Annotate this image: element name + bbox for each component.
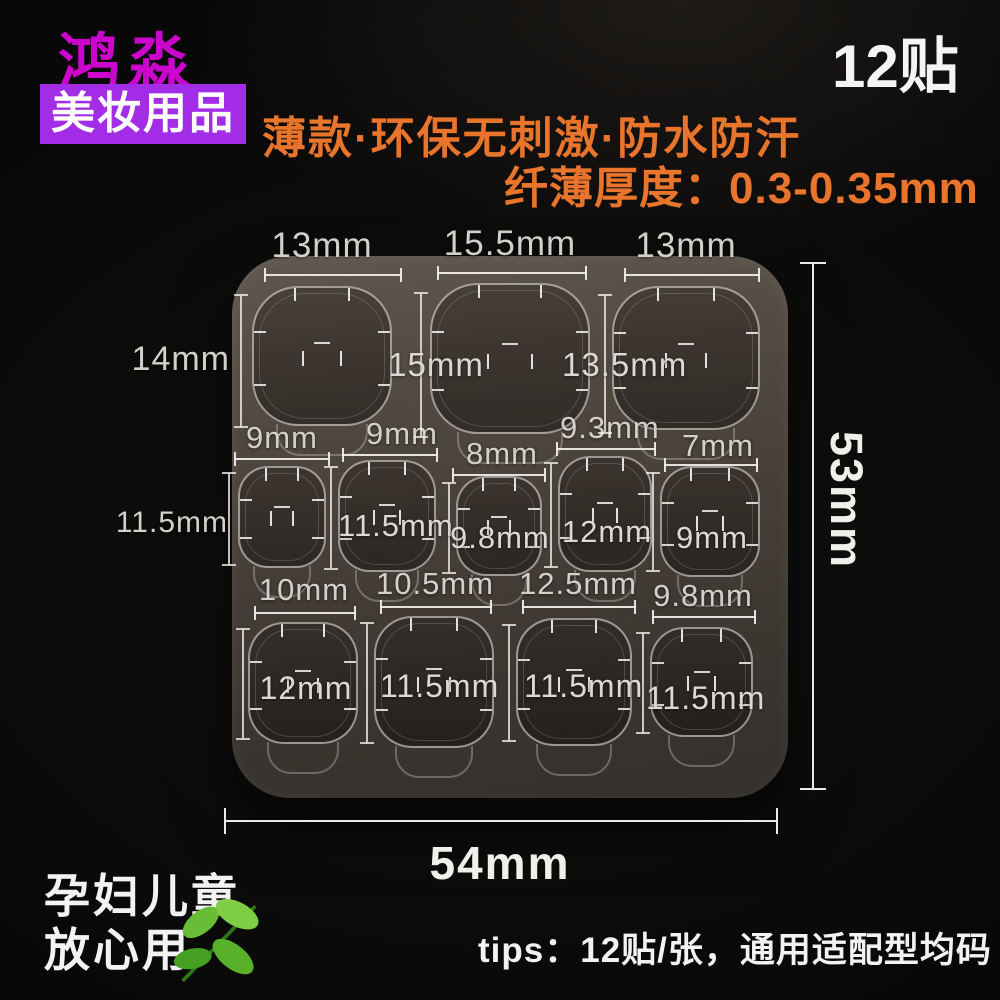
width-label-r3-1: 10mm (252, 572, 356, 608)
width-dim-line-r2-5 (664, 458, 758, 472)
leaf-icon (162, 892, 274, 998)
width-dim-line-r2-1 (234, 452, 330, 466)
height-dim-line-r3-3 (502, 624, 516, 742)
height-label-r3-2: 11.5mm (380, 668, 496, 705)
thickness-headline: 纤薄厚度：0.3-0.35mm (504, 152, 979, 216)
height-dim-line-r1-1 (234, 294, 248, 428)
width-dim-line-r3-4 (652, 610, 756, 624)
width-dim-line-r1-1 (264, 268, 402, 282)
overall-height-label: 53mm (820, 431, 872, 569)
width-label-r3-3: 12.5mm (518, 566, 638, 602)
width-dim-line-r3-3 (522, 600, 636, 614)
width-label-r2-1: 9mm (238, 420, 326, 456)
sticker-r2-1 (238, 466, 326, 568)
height-label-r3-4: 11.5mm (646, 680, 758, 717)
overall-width-label: 54mm (360, 836, 640, 890)
width-label-r1-1: 13mm (252, 226, 392, 266)
height-dim-line-r2-2 (324, 466, 338, 570)
width-dim-line-r2-4 (556, 442, 656, 456)
brand-category-badge: 美妆用品 (40, 84, 246, 144)
height-dim-line-r3-1 (236, 628, 250, 740)
width-label-r2-3: 8mm (456, 436, 548, 472)
width-dim-line-r2-2 (342, 448, 438, 462)
height-label-r3-1: 12mm (254, 670, 358, 707)
width-dim-line-r3-1 (254, 606, 356, 620)
width-dim-line-r3-2 (380, 600, 492, 614)
height-label-r2-2: 11.5mm (338, 508, 450, 544)
width-label-r2-2: 9mm (356, 416, 448, 452)
tips-note: tips：12贴/张，通用适配型均码 (478, 922, 998, 973)
width-dim-line-r1-2 (437, 266, 587, 280)
width-dim-line-r2-3 (452, 468, 546, 482)
height-label-r3-3: 11.5mm (524, 668, 636, 705)
sticker-count-badge: 12贴 (832, 18, 959, 105)
height-label-r1-3: 13.5mm (562, 346, 682, 384)
height-label-r2-3: 9.8mm (450, 520, 548, 556)
height-label-r2-1: 11.5mm (98, 506, 228, 540)
width-label-r3-4: 9.8mm (650, 578, 756, 614)
height-label-r2-5: 9mm (670, 520, 754, 556)
width-dim-line-r1-3 (624, 268, 760, 282)
height-label-r1-2: 15mm (382, 346, 490, 384)
height-label-r2-4: 12mm (560, 514, 654, 550)
sticker-r1-1 (252, 286, 392, 426)
height-label-r1-1: 14mm (118, 340, 230, 379)
height-dim-line-r3-2 (360, 622, 374, 744)
product-image: 鸿淼 美妆用品 12贴 薄款·环保无刺激·防水防汗 纤薄厚度：0.3-0.35m… (0, 0, 1000, 1000)
overall-width-dim-line (224, 808, 778, 834)
width-label-r1-2: 15.5mm (430, 224, 590, 264)
width-label-r3-2: 10.5mm (376, 566, 494, 602)
width-label-r1-3: 13mm (612, 226, 760, 266)
